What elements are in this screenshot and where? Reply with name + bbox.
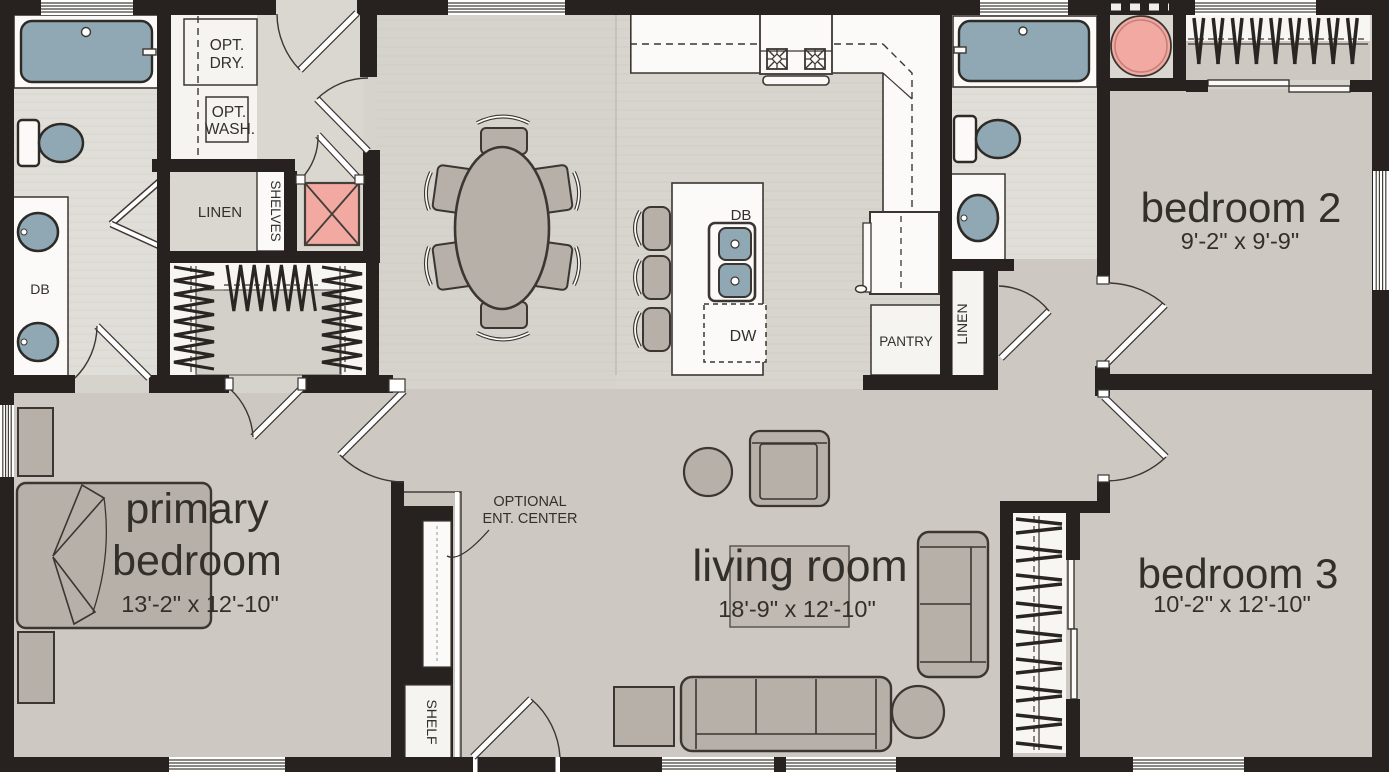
- svg-text:LINEN: LINEN: [954, 303, 970, 344]
- svg-text:OPT.: OPT.: [212, 104, 246, 121]
- svg-text:9'-2" x 9'-9": 9'-2" x 9'-9": [1181, 228, 1299, 254]
- svg-text:bedroom 2: bedroom 2: [1141, 184, 1342, 231]
- svg-text:living room: living room: [692, 542, 907, 591]
- svg-text:DB: DB: [731, 207, 752, 224]
- svg-text:SHELF: SHELF: [424, 699, 440, 744]
- svg-text:ENT. CENTER: ENT. CENTER: [482, 511, 577, 527]
- svg-text:bedroom 3: bedroom 3: [1138, 550, 1339, 597]
- svg-text:DRY.: DRY.: [210, 55, 245, 72]
- svg-text:SHELVES: SHELVES: [268, 180, 283, 241]
- svg-text:DB: DB: [30, 281, 49, 297]
- svg-text:OPT.: OPT.: [210, 37, 244, 54]
- svg-text:OPTIONAL: OPTIONAL: [493, 494, 566, 510]
- svg-text:10'-2" x 12'-10": 10'-2" x 12'-10": [1153, 591, 1311, 617]
- svg-text:PANTRY: PANTRY: [879, 334, 933, 349]
- svg-text:bedroom: bedroom: [112, 537, 282, 585]
- svg-text:WASH.: WASH.: [205, 121, 255, 138]
- svg-text:primary: primary: [125, 485, 269, 533]
- svg-text:DW: DW: [730, 328, 758, 345]
- svg-text:13'-2" x 12'-10": 13'-2" x 12'-10": [121, 591, 279, 617]
- svg-text:LINEN: LINEN: [198, 204, 242, 221]
- svg-text:18'-9" x 12'-10": 18'-9" x 12'-10": [718, 596, 876, 622]
